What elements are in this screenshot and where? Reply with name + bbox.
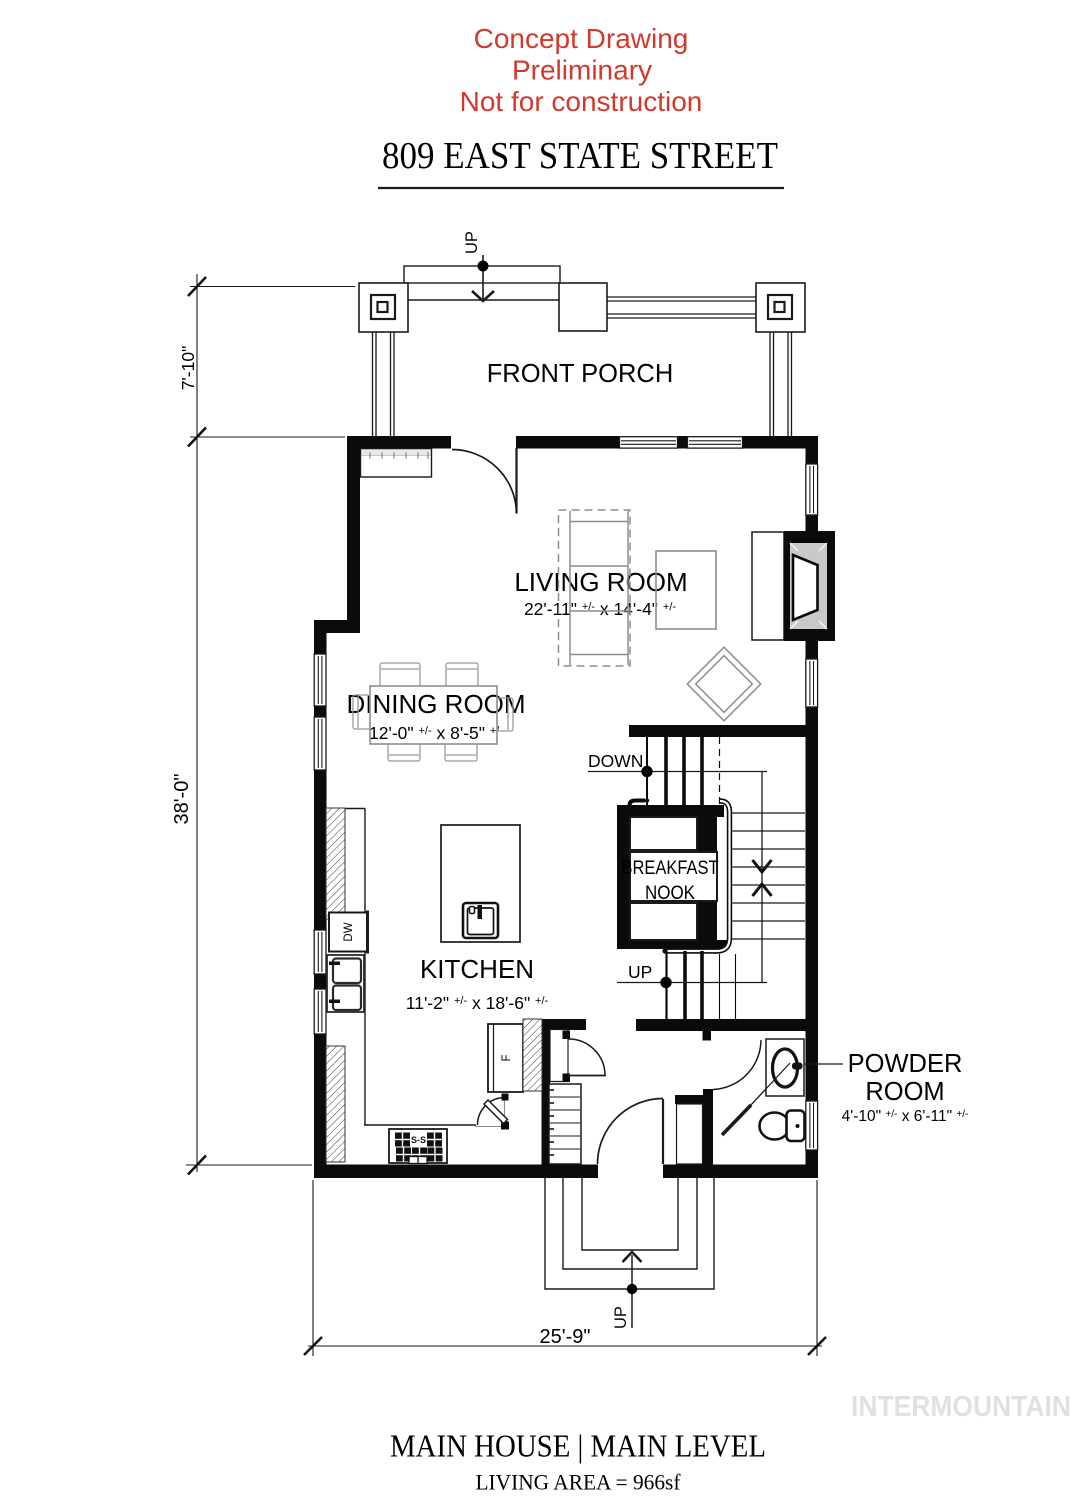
svg-text:DOWN: DOWN — [588, 751, 643, 771]
svg-text:ROOM: ROOM — [865, 1078, 944, 1106]
svg-text:POWDER: POWDER — [848, 1050, 963, 1078]
svg-text:DW: DW — [343, 922, 355, 941]
svg-text:4'-10" +/- x 6'-11" +/-: 4'-10" +/- x 6'-11" +/- — [842, 1108, 969, 1125]
svg-text:FRONT PORCH: FRONT PORCH — [487, 360, 674, 388]
svg-text:LIVING AREA = 966sf: LIVING AREA = 966sf — [476, 1470, 681, 1495]
svg-text:NOOK: NOOK — [645, 883, 695, 904]
svg-text:LIVING ROOM: LIVING ROOM — [514, 567, 687, 597]
svg-text:UP: UP — [612, 1306, 630, 1329]
svg-text:UP: UP — [463, 231, 481, 254]
svg-text:Preliminary: Preliminary — [512, 55, 652, 86]
svg-text:25'-9": 25'-9" — [540, 1326, 591, 1348]
svg-text:BREAKFAST: BREAKFAST — [622, 858, 719, 879]
svg-text:Not for construction: Not for construction — [460, 86, 703, 117]
svg-text:Concept Drawing: Concept Drawing — [474, 23, 689, 54]
svg-text:22'-11" +/- x 14'-4" +/-: 22'-11" +/- x 14'-4" +/- — [524, 599, 676, 619]
svg-text:F: F — [501, 1054, 513, 1061]
svg-text:7'-10": 7'-10" — [178, 346, 198, 391]
svg-text:11'-2" +/- x 18'-6" +/-: 11'-2" +/- x 18'-6" +/- — [406, 993, 549, 1013]
svg-text:UP: UP — [628, 962, 652, 982]
svg-text:S-S: S-S — [411, 1135, 426, 1145]
svg-text:DINING ROOM: DINING ROOM — [346, 689, 525, 719]
svg-text:INTERMOUNTAIN: INTERMOUNTAIN — [851, 1391, 1071, 1423]
svg-text:KITCHEN: KITCHEN — [420, 954, 534, 984]
svg-text:MAIN HOUSE | MAIN LEVEL: MAIN HOUSE | MAIN LEVEL — [390, 1428, 766, 1464]
svg-text:38'-0": 38'-0" — [171, 774, 193, 825]
svg-text:809 EAST STATE STREET: 809 EAST STATE STREET — [382, 135, 778, 177]
svg-text:12'-0" +/- x 8'-5" +/-: 12'-0" +/- x 8'-5" +/- — [369, 723, 503, 743]
